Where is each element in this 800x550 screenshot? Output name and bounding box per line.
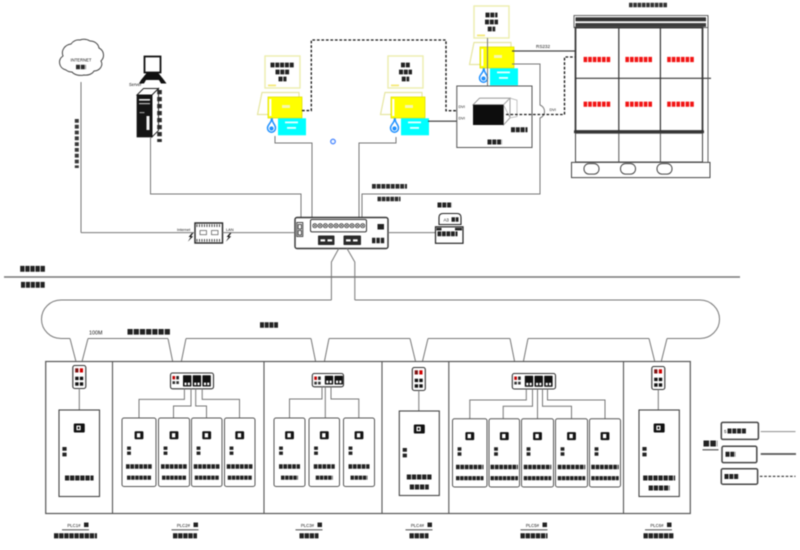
svg-text:PLC2#: PLC2# [177,523,191,528]
svg-text:DVI: DVI [550,107,557,112]
svg-text:LAN: LAN [226,227,234,232]
svg-text:INTERNET: INTERNET [71,58,92,63]
svg-text:PLC1#: PLC1# [67,523,81,528]
svg-text:PLC6#: PLC6# [650,523,664,528]
svg-text:DVI: DVI [459,104,466,109]
svg-text:A3: A3 [444,218,450,223]
svg-text:5: 5 [724,429,727,434]
svg-text:PLC3#: PLC3# [301,523,315,528]
svg-text:Internet: Internet [177,227,191,232]
svg-text:DVI: DVI [459,115,466,120]
svg-text:PLC4#: PLC4# [411,523,425,528]
svg-text:Server: Server [129,82,142,87]
svg-text:RS232: RS232 [536,44,550,49]
svg-text:PLC5#: PLC5# [526,523,540,528]
svg-text:100M: 100M [89,331,103,337]
